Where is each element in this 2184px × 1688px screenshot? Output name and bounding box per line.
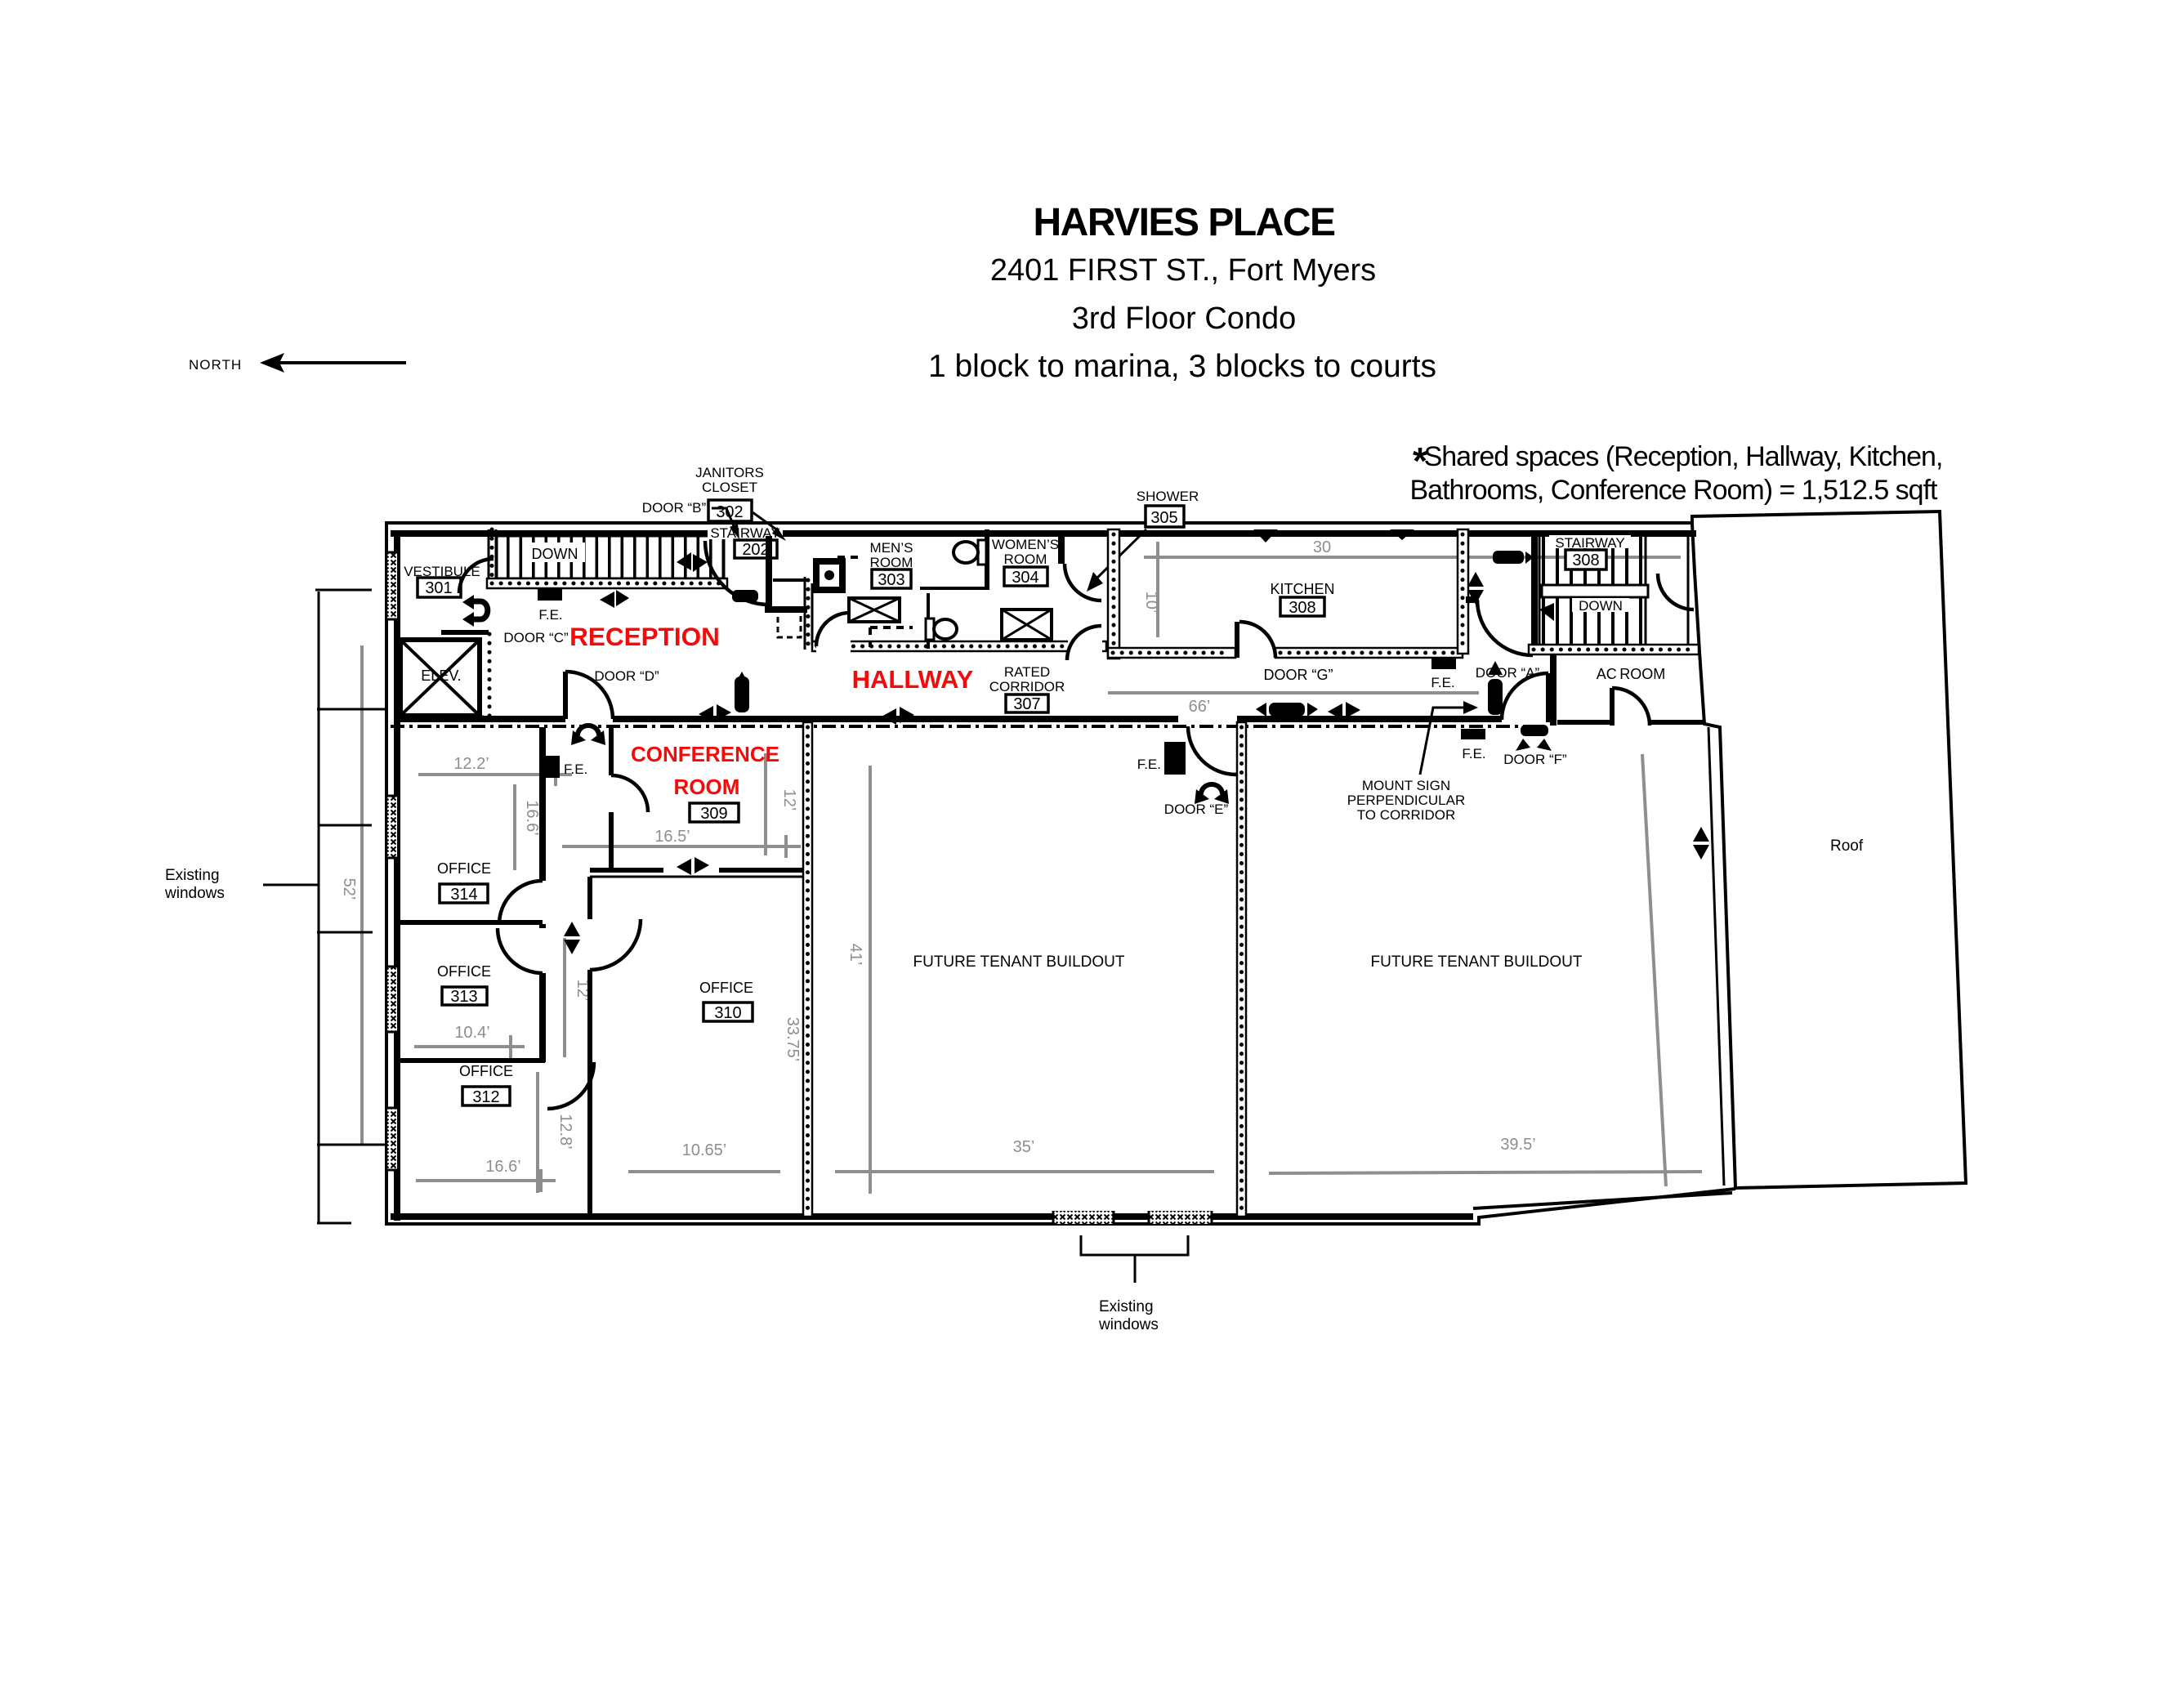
svg-text:310: 310 bbox=[714, 1004, 741, 1022]
svg-text:windows: windows bbox=[1098, 1316, 1159, 1333]
svg-text:304: 304 bbox=[1012, 569, 1038, 587]
svg-text:CONFERENCE: CONFERENCE bbox=[631, 742, 779, 766]
svg-text:202: 202 bbox=[742, 541, 769, 559]
svg-text:314: 314 bbox=[450, 886, 477, 904]
svg-text:66’: 66’ bbox=[1189, 698, 1211, 716]
svg-text:DOOR “F”: DOOR “F” bbox=[1503, 752, 1567, 767]
svg-text:FUTURE TENANT BUILDOUT: FUTURE TENANT BUILDOUT bbox=[1371, 953, 1583, 971]
svg-text:MEN’S: MEN’S bbox=[870, 540, 913, 556]
svg-text:39.5’: 39.5’ bbox=[1500, 1136, 1535, 1154]
svg-text:3rd Floor Condo: 3rd Floor Condo bbox=[1072, 301, 1297, 336]
svg-text:HALLWAY: HALLWAY bbox=[852, 665, 974, 694]
svg-text:MOUNT SIGN: MOUNT SIGN bbox=[1362, 778, 1450, 793]
svg-text:Existing: Existing bbox=[1099, 1298, 1154, 1315]
svg-text:Shared spaces (Reception, Hall: Shared spaces (Reception, Hallway, Kitch… bbox=[1424, 441, 1943, 472]
svg-text:FUTURE TENANT BUILDOUT: FUTURE TENANT BUILDOUT bbox=[913, 953, 1125, 971]
svg-text:DOOR “B”: DOOR “B” bbox=[642, 500, 707, 516]
svg-text:EXIT: EXIT bbox=[1498, 552, 1520, 564]
svg-text:HARVIES PLACE: HARVIES PLACE bbox=[1033, 201, 1335, 244]
svg-text:F.E.: F.E. bbox=[1431, 675, 1454, 690]
svg-text:10.4’: 10.4’ bbox=[454, 1024, 489, 1042]
svg-text:12’: 12’ bbox=[780, 789, 798, 811]
svg-text:EXIT: EXIT bbox=[1489, 685, 1502, 708]
svg-text:STAIRWAY: STAIRWAY bbox=[1555, 535, 1624, 551]
svg-text:TO CORRIDOR: TO CORRIDOR bbox=[1357, 807, 1456, 823]
svg-text:AC ROOM: AC ROOM bbox=[1597, 666, 1666, 682]
svg-text:DOWN: DOWN bbox=[532, 546, 578, 562]
svg-text:303: 303 bbox=[878, 571, 904, 589]
svg-text:RATED: RATED bbox=[1004, 664, 1050, 680]
svg-text:EXIT: EXIT bbox=[736, 593, 754, 602]
svg-text:KITCHEN: KITCHEN bbox=[1270, 581, 1334, 597]
svg-text:10.65’: 10.65’ bbox=[682, 1141, 727, 1159]
svg-text:16.6’: 16.6’ bbox=[485, 1158, 520, 1176]
svg-text:CLOSET: CLOSET bbox=[702, 480, 757, 495]
svg-text:OFFICE: OFFICE bbox=[437, 860, 491, 877]
svg-text:305: 305 bbox=[1150, 509, 1177, 527]
svg-text:ROOM: ROOM bbox=[1004, 552, 1047, 567]
svg-text:16.5’: 16.5’ bbox=[654, 828, 690, 846]
svg-text:52’: 52’ bbox=[340, 878, 358, 900]
svg-text:ROOM: ROOM bbox=[870, 555, 913, 570]
svg-text:PERPENDICULAR: PERPENDICULAR bbox=[1347, 793, 1466, 808]
svg-text:F.E.: F.E. bbox=[1462, 746, 1485, 761]
svg-text:35’: 35’ bbox=[1013, 1138, 1035, 1156]
svg-text:33.75’: 33.75’ bbox=[784, 1017, 802, 1062]
svg-text:16.6’: 16.6’ bbox=[523, 800, 541, 835]
svg-text:312: 312 bbox=[472, 1088, 499, 1106]
svg-text:DOOR “E”: DOOR “E” bbox=[1164, 802, 1229, 817]
svg-text:30: 30 bbox=[1313, 538, 1331, 556]
svg-text:windows: windows bbox=[164, 885, 225, 902]
svg-text:308: 308 bbox=[1572, 552, 1599, 569]
svg-text:12.2’: 12.2’ bbox=[453, 755, 489, 773]
svg-text:ELEV.: ELEV. bbox=[421, 668, 461, 684]
svg-text:F.E.: F.E. bbox=[538, 607, 562, 623]
svg-text:OFFICE: OFFICE bbox=[459, 1063, 513, 1079]
svg-text:DOOR “C”: DOOR “C” bbox=[503, 630, 569, 645]
svg-text:308: 308 bbox=[1289, 599, 1315, 617]
svg-text:309: 309 bbox=[700, 805, 727, 823]
svg-text:CORRIDOR: CORRIDOR bbox=[989, 679, 1065, 694]
svg-text:Existing: Existing bbox=[165, 867, 220, 884]
svg-text:OFFICE: OFFICE bbox=[437, 963, 491, 980]
svg-text:WOMEN’S: WOMEN’S bbox=[992, 537, 1059, 552]
svg-text:F.E.: F.E. bbox=[564, 761, 587, 777]
svg-text:12.8’: 12.8’ bbox=[556, 1114, 574, 1149]
svg-text:2401 FIRST ST., Fort Myers: 2401 FIRST ST., Fort Myers bbox=[990, 253, 1376, 288]
svg-text:Roof: Roof bbox=[1830, 837, 1864, 855]
svg-text:301: 301 bbox=[425, 579, 452, 597]
svg-text:SHOWER: SHOWER bbox=[1137, 489, 1199, 504]
svg-text:OFFICE: OFFICE bbox=[699, 980, 753, 996]
svg-text:EXIT: EXIT bbox=[1275, 704, 1299, 717]
svg-text:DOWN: DOWN bbox=[1579, 598, 1623, 614]
svg-text:DOOR “G”: DOOR “G” bbox=[1264, 667, 1333, 683]
svg-text:EXIT: EXIT bbox=[736, 682, 748, 706]
svg-text:JANITORS: JANITORS bbox=[695, 465, 764, 480]
svg-text:RECEPTION: RECEPTION bbox=[569, 622, 720, 651]
svg-text:NORTH: NORTH bbox=[189, 357, 242, 373]
svg-text:EXIT: EXIT bbox=[1525, 727, 1543, 736]
svg-text:1 block to marina, 3 blocks to: 1 block to marina, 3 blocks to courts bbox=[928, 349, 1436, 384]
svg-text:ROOM: ROOM bbox=[674, 775, 740, 799]
svg-text:DOOR “D”: DOOR “D” bbox=[594, 668, 659, 684]
svg-text:41’: 41’ bbox=[846, 944, 864, 966]
svg-text:Bathrooms, Conference Room) =: Bathrooms, Conference Room) = 1,512.5 sq… bbox=[1410, 475, 1939, 506]
svg-text:313: 313 bbox=[450, 988, 477, 1006]
svg-text:307: 307 bbox=[1013, 695, 1040, 713]
svg-text:F.E.: F.E. bbox=[1137, 757, 1161, 772]
